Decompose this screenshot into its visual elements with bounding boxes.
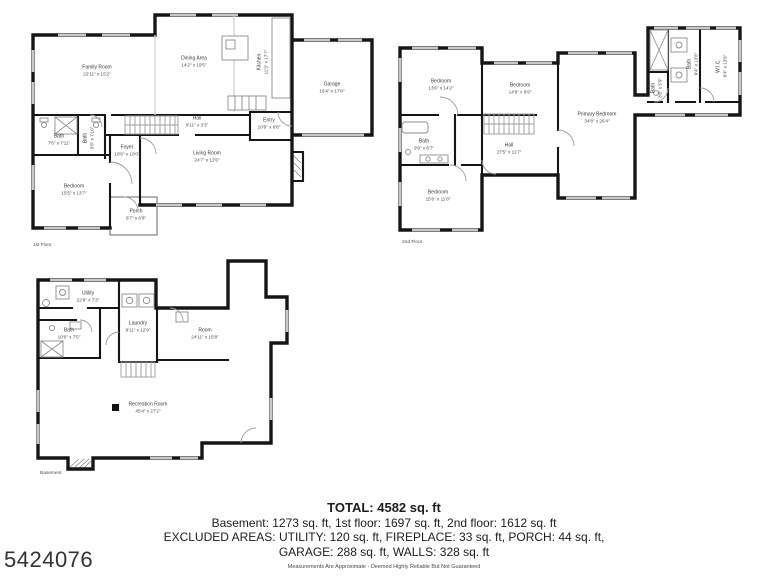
first-floor-caption: 1st Floor: [33, 243, 52, 248]
room-label-wic: W.I.C. 8'4" x 13'8": [716, 55, 729, 78]
disclaimer-text: Measurements Are Approximate - Deemed Hi…: [0, 564, 768, 570]
room-label-kitchen: Kitchen 11'3" x 17'7": [257, 50, 270, 75]
room-label-foyer: Foyer 10'6" x 10'0": [114, 145, 139, 158]
room-label-room-basement: Room 24'11" x 15'8": [191, 328, 218, 341]
room-label-bath2-1f: Bath 3'8" x 7'10": [83, 127, 96, 150]
room-label-entry: Entry 10'6" x 6'8": [258, 118, 281, 131]
room-label-bedroom1-2f: Bedroom 13'6" x 14'2": [428, 79, 453, 92]
room-label-bath3-2f: Bath 9'4" x 13'8": [687, 53, 700, 76]
excluded-areas-line-2: GARAGE: 288 sq. ft, WALLS: 328 sq. ft: [0, 545, 768, 559]
room-label-bath-basement: Bath 10'6" x 7'5": [58, 328, 81, 341]
basement-caption: Basement: [40, 471, 62, 476]
room-label-recreation-room: Recreation Room 45'4" x 27'2": [129, 402, 168, 415]
room-label-bath1-2f: Bath 9'9" x 6'7": [414, 139, 434, 152]
room-label-bedroom3-2f: Bedroom 15'6" x 11'8": [426, 190, 451, 203]
room-label-primary-bedroom: Primary Bedroom 34'8" x 26'4": [578, 112, 617, 125]
area-summary: TOTAL: 4582 sq. ft Basement: 1273 sq. ft…: [0, 500, 768, 570]
room-label-garage: Garage 16'4" x 17'8": [319, 82, 344, 95]
room-label-utility: Utility 22'8" x 7'3": [77, 291, 100, 304]
basement-plan: [38, 261, 287, 469]
floor-plan-page: Family Room 22'11" x 15'2" Dining Area 1…: [0, 0, 768, 576]
room-label-porch: Porch 6'7" x 6'8": [126, 209, 146, 222]
room-label-dining-area: Dining Area 14'2" x 19'5": [181, 56, 207, 69]
room-label-hall-1f: Hall 9'11" x 3'3": [186, 116, 208, 129]
room-label-living-room: Living Room 24'7" x 12'6": [193, 151, 221, 164]
room-label-bath2-2f: Bath 3'8" x 5'9": [651, 78, 664, 98]
floor-areas-line: Basement: 1273 sq. ft, 1st floor: 1697 s…: [0, 516, 768, 530]
room-label-bath-1f: Bath 7'6" x 7'11": [48, 134, 70, 147]
room-label-family-room: Family Room 22'11" x 15'2": [82, 65, 111, 78]
room-label-laundry: Laundry 9'11" x 12'9": [126, 321, 151, 334]
room-label-bedroom2-2f: Bedroom 14'9" x 9'9": [509, 83, 532, 96]
room-label-hall-2f: Hall 27'5" x 11'7": [497, 143, 522, 156]
room-label-bedroom-1f: Bedroom 15'5" x 13'7": [61, 184, 86, 197]
excluded-areas-line-1: EXCLUDED AREAS: UTILITY: 120 sq. ft, FIR…: [0, 530, 768, 544]
second-floor-caption: 2nd Floor: [402, 240, 422, 245]
total-area-line: TOTAL: 4582 sq. ft: [0, 500, 768, 515]
fireplace-marker: [112, 404, 119, 411]
mls-number: 5424076: [4, 547, 93, 573]
